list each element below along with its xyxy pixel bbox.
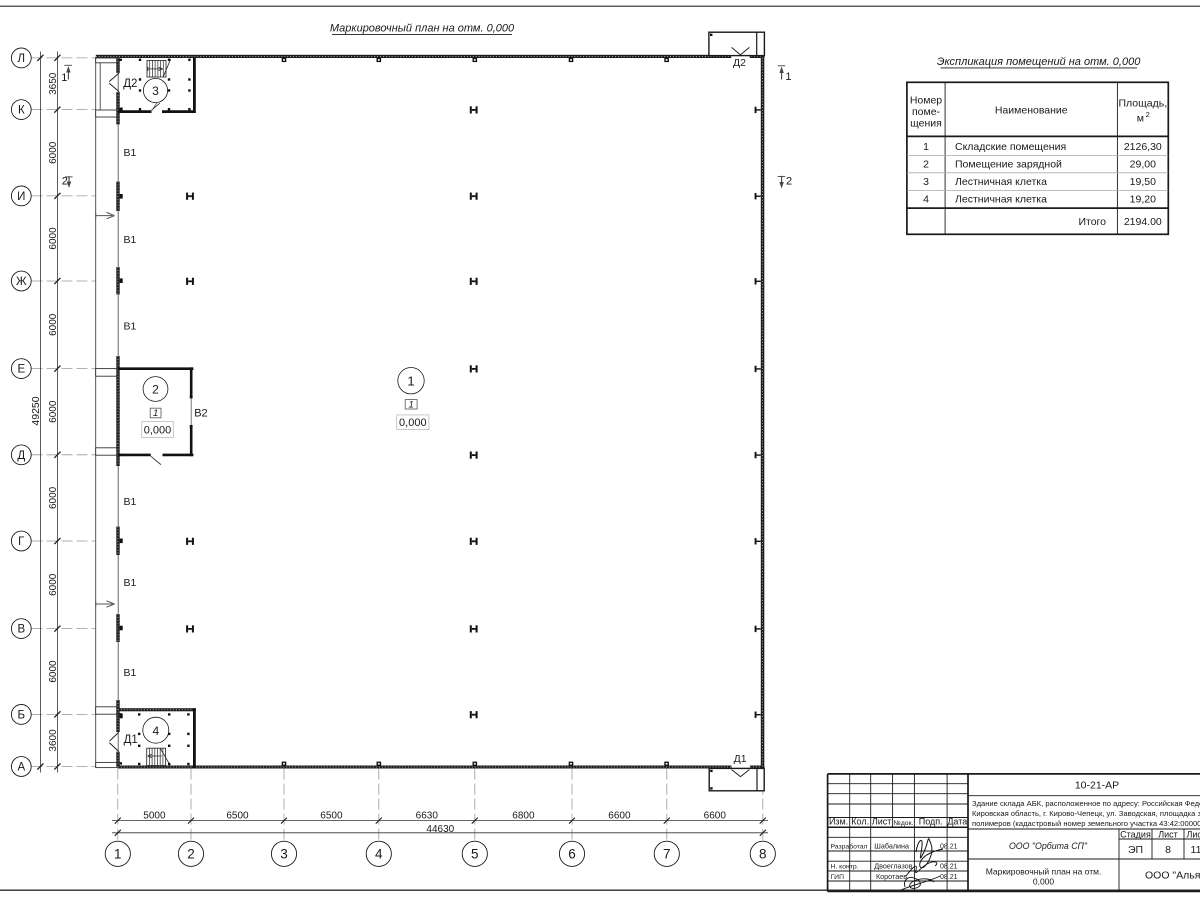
svg-text:6000: 6000: [48, 573, 59, 596]
svg-text:Лист: Лист: [872, 817, 892, 827]
svg-text:7: 7: [663, 847, 671, 862]
svg-text:В: В: [17, 624, 25, 636]
svg-text:Маркировочный план на отм.: Маркировочный план на отм.: [986, 867, 1102, 877]
svg-text:Двоеглазов: Двоеглазов: [874, 862, 912, 871]
svg-text:29,00: 29,00: [1130, 159, 1156, 171]
svg-text:6630: 6630: [416, 811, 439, 822]
svg-text:Разработал: Разработал: [831, 842, 868, 850]
svg-text:В1: В1: [124, 147, 137, 159]
svg-text:2: 2: [786, 176, 792, 188]
svg-text:ЭП: ЭП: [1128, 844, 1143, 856]
svg-text:44630: 44630: [426, 824, 454, 835]
svg-text:Ж: Ж: [16, 276, 27, 288]
svg-text:3: 3: [152, 84, 159, 98]
svg-text:3: 3: [280, 847, 288, 862]
svg-text:6000: 6000: [48, 227, 59, 250]
svg-text:Номер: Номер: [910, 94, 942, 106]
svg-text:В1: В1: [124, 321, 137, 333]
svg-text:А: А: [17, 762, 25, 774]
svg-text:1: 1: [785, 71, 791, 83]
svg-text:Д: Д: [17, 450, 25, 462]
svg-text:6000: 6000: [48, 486, 59, 509]
svg-text:6500: 6500: [320, 811, 343, 822]
svg-text:Площадь,: Площадь,: [1118, 98, 1167, 110]
svg-text:Г: Г: [18, 536, 25, 548]
svg-text:49250: 49250: [30, 396, 42, 425]
svg-text:Д1: Д1: [734, 753, 747, 765]
svg-text:1: 1: [409, 399, 414, 410]
svg-text:2126,30: 2126,30: [1124, 141, 1162, 153]
svg-text:11: 11: [1191, 844, 1200, 856]
svg-text:Изм.: Изм.: [829, 817, 848, 827]
svg-text:3600: 3600: [48, 729, 59, 752]
svg-text:щения: щения: [910, 117, 942, 129]
svg-text:0,000: 0,000: [1033, 877, 1055, 887]
svg-text:2: 2: [1146, 110, 1150, 119]
svg-text:1: 1: [61, 72, 67, 84]
svg-text:3: 3: [923, 176, 929, 188]
svg-text:Л: Л: [18, 53, 26, 65]
svg-text:6600: 6600: [704, 811, 727, 822]
svg-text:Шабалина: Шабалина: [874, 841, 909, 850]
svg-text:1: 1: [923, 141, 929, 153]
svg-text:6000: 6000: [48, 660, 59, 683]
svg-text:Б: Б: [18, 709, 26, 721]
svg-text:ООО "Альянс: ООО "Альянс: [1145, 870, 1200, 882]
svg-text:2: 2: [923, 159, 929, 171]
svg-text:5: 5: [471, 847, 479, 862]
svg-text:В1: В1: [124, 667, 137, 679]
svg-text:08.21: 08.21: [940, 864, 958, 871]
svg-text:4: 4: [923, 194, 929, 206]
svg-text:19,20: 19,20: [1130, 194, 1156, 206]
svg-text:Помещение зарядной: Помещение зарядной: [955, 159, 1062, 171]
svg-text:4: 4: [152, 724, 159, 738]
svg-text:Итого: Итого: [1078, 216, 1106, 228]
svg-text:Здание склада АБК, расположенн: Здание склада АБК, расположенное по адре…: [972, 799, 1200, 808]
svg-text:м: м: [1137, 113, 1144, 125]
svg-text:Д1: Д1: [124, 734, 138, 746]
svg-text:6: 6: [568, 847, 576, 862]
svg-text:Дата: Дата: [947, 817, 967, 827]
svg-text:0,000: 0,000: [144, 424, 172, 436]
svg-text:10-21-АР: 10-21-АР: [1075, 779, 1119, 791]
svg-text:5000: 5000: [143, 811, 166, 822]
svg-text:В1: В1: [124, 577, 137, 589]
svg-text:поме-: поме-: [912, 106, 941, 118]
svg-text:2194.00: 2194.00: [1124, 216, 1162, 228]
svg-text:Складские помещения: Складские помещения: [955, 141, 1066, 153]
svg-text:1: 1: [153, 408, 158, 419]
svg-text:К: К: [18, 105, 25, 117]
svg-text:Подп.: Подп.: [919, 817, 943, 827]
svg-text:Экспликация помещений на отм.: Экспликация помещений на отм. 0,000: [937, 56, 1141, 68]
svg-text:Д2: Д2: [123, 78, 137, 90]
svg-text:Лист: Лист: [1158, 829, 1178, 839]
svg-text:ГИП: ГИП: [831, 874, 845, 881]
svg-text:2: 2: [152, 382, 159, 396]
svg-text:08.21: 08.21: [940, 874, 958, 881]
svg-text:Е: Е: [17, 364, 25, 376]
svg-text:6500: 6500: [226, 811, 249, 822]
svg-text:И: И: [17, 191, 25, 203]
svg-text:Н. контр.: Н. контр.: [831, 864, 859, 871]
svg-text:6600: 6600: [608, 811, 631, 822]
svg-text:ООО "Орбита СП": ООО "Орбита СП": [1009, 841, 1088, 851]
svg-text:3650: 3650: [48, 72, 59, 95]
svg-text:6000: 6000: [48, 313, 59, 336]
svg-text:Листов: Листов: [1187, 829, 1200, 839]
svg-text:1: 1: [407, 373, 414, 388]
svg-text:2: 2: [187, 847, 195, 862]
svg-text:Стадия: Стадия: [1120, 829, 1151, 839]
svg-text:Лестничная клетка: Лестничная клетка: [955, 176, 1047, 188]
svg-text:Наименование: Наименование: [995, 105, 1068, 117]
svg-text:Маркировочный план на отм. 0,0: Маркировочный план на отм. 0,000: [330, 23, 515, 35]
svg-text:В2: В2: [194, 407, 207, 419]
svg-text:Коротаев: Коротаев: [876, 872, 907, 881]
svg-text:В1: В1: [124, 496, 137, 508]
svg-text:полимеров (кадастровый номер з: полимеров (кадастровый номер земельного …: [972, 819, 1200, 828]
svg-text:№док.: №док.: [894, 820, 914, 827]
svg-text:Кировская область, г. Кирово-Ч: Кировская область, г. Кирово-Чепецк, ул.…: [972, 809, 1200, 818]
svg-text:8: 8: [1165, 844, 1171, 856]
svg-text:2: 2: [62, 176, 68, 188]
svg-text:19,50: 19,50: [1130, 176, 1156, 188]
svg-text:В1: В1: [124, 234, 137, 246]
svg-text:Д2: Д2: [733, 57, 746, 69]
svg-text:6000: 6000: [48, 141, 59, 164]
svg-text:4: 4: [375, 847, 383, 862]
svg-text:1: 1: [114, 847, 122, 862]
svg-text:6800: 6800: [512, 811, 535, 822]
svg-text:8: 8: [759, 847, 767, 862]
svg-text:Кол.: Кол.: [851, 817, 869, 827]
svg-text:Лестничная клетка: Лестничная клетка: [955, 194, 1047, 206]
svg-text:6000: 6000: [48, 400, 59, 423]
svg-text:0,000: 0,000: [399, 417, 427, 429]
